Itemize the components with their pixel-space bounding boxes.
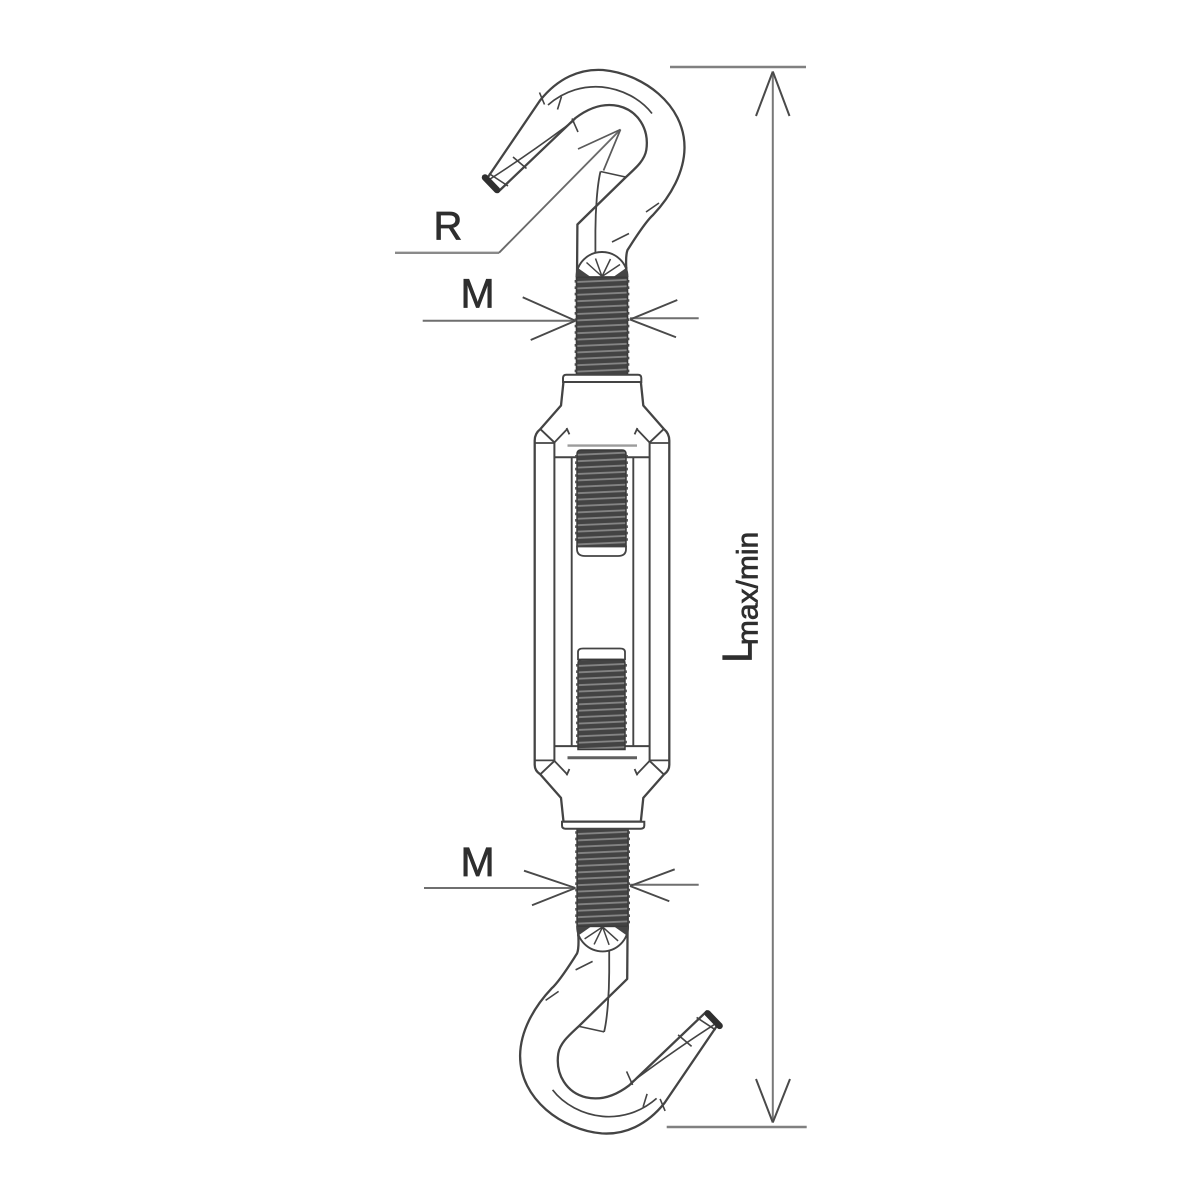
svg-text:M: M — [461, 839, 495, 885]
svg-text:M: M — [461, 271, 495, 317]
svg-text:Lmax/min: Lmax/min — [714, 532, 765, 663]
svg-text:R: R — [434, 205, 463, 249]
